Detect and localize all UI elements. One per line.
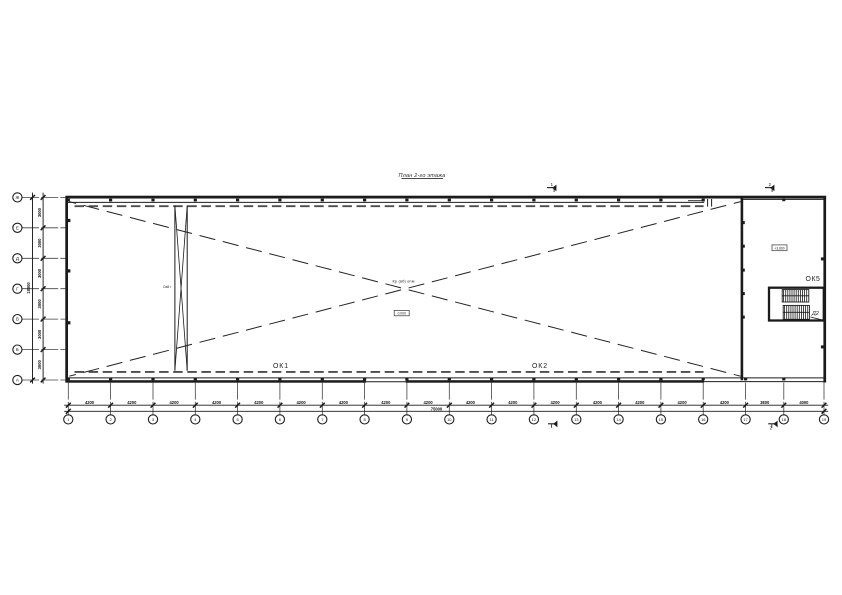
svg-text:4200: 4200 (254, 400, 264, 405)
svg-text:4200: 4200 (678, 400, 688, 405)
svg-text:75000: 75000 (431, 406, 443, 411)
svg-text:2: 2 (769, 182, 772, 187)
svg-text:ОК1: ОК1 (273, 363, 289, 370)
svg-text:4000: 4000 (799, 400, 809, 405)
svg-text:ОК5: ОК5 (805, 276, 820, 283)
svg-text:Б: Б (16, 347, 19, 352)
svg-text:А: А (16, 378, 19, 383)
svg-text:0.000: 0.000 (398, 312, 406, 316)
svg-text:14: 14 (616, 417, 621, 422)
svg-text:16: 16 (701, 417, 706, 422)
svg-text:4200: 4200 (720, 400, 730, 405)
svg-text:4200: 4200 (297, 400, 307, 405)
svg-text:4200: 4200 (593, 400, 603, 405)
svg-text:3000: 3000 (37, 268, 42, 278)
svg-text:3000: 3000 (37, 329, 42, 339)
svg-text:4200: 4200 (381, 400, 391, 405)
svg-text:План 2-го этажа: План 2-го этажа (399, 173, 446, 179)
svg-text:3000: 3000 (37, 207, 42, 217)
svg-text:Ж: Ж (15, 195, 19, 200)
svg-text:3000: 3000 (37, 299, 42, 309)
svg-text:4200: 4200 (508, 400, 518, 405)
svg-text:10: 10 (447, 417, 452, 422)
svg-text:18000: 18000 (26, 282, 31, 294)
svg-text:4200: 4200 (466, 400, 476, 405)
svg-text:4200: 4200 (212, 400, 222, 405)
svg-text:Д: Д (16, 256, 19, 261)
svg-text:+3.600: +3.600 (774, 246, 784, 250)
svg-text:15: 15 (659, 417, 664, 422)
svg-text:Д2: Д2 (811, 311, 819, 317)
svg-text:Св8 г: Св8 г (163, 285, 172, 289)
svg-text:4200: 4200 (127, 400, 137, 405)
svg-text:12: 12 (532, 417, 537, 422)
svg-text:Е: Е (16, 225, 19, 230)
svg-text:ОК2: ОК2 (532, 363, 548, 370)
svg-text:Кр (вб) опм: Кр (вб) опм (392, 279, 414, 284)
svg-text:4200: 4200 (551, 400, 561, 405)
svg-text:4200: 4200 (170, 400, 180, 405)
svg-text:18: 18 (782, 417, 787, 422)
svg-text:17: 17 (743, 417, 748, 422)
svg-text:1: 1 (551, 182, 554, 187)
svg-text:13: 13 (574, 417, 579, 422)
svg-text:В: В (16, 317, 19, 322)
svg-text:3000: 3000 (37, 360, 42, 370)
svg-text:4200: 4200 (339, 400, 349, 405)
svg-text:3800: 3800 (760, 400, 770, 405)
svg-text:4200: 4200 (85, 400, 95, 405)
svg-text:3000: 3000 (37, 238, 42, 248)
svg-text:4200: 4200 (424, 400, 434, 405)
svg-text:4200: 4200 (635, 400, 645, 405)
svg-text:19: 19 (822, 417, 827, 422)
